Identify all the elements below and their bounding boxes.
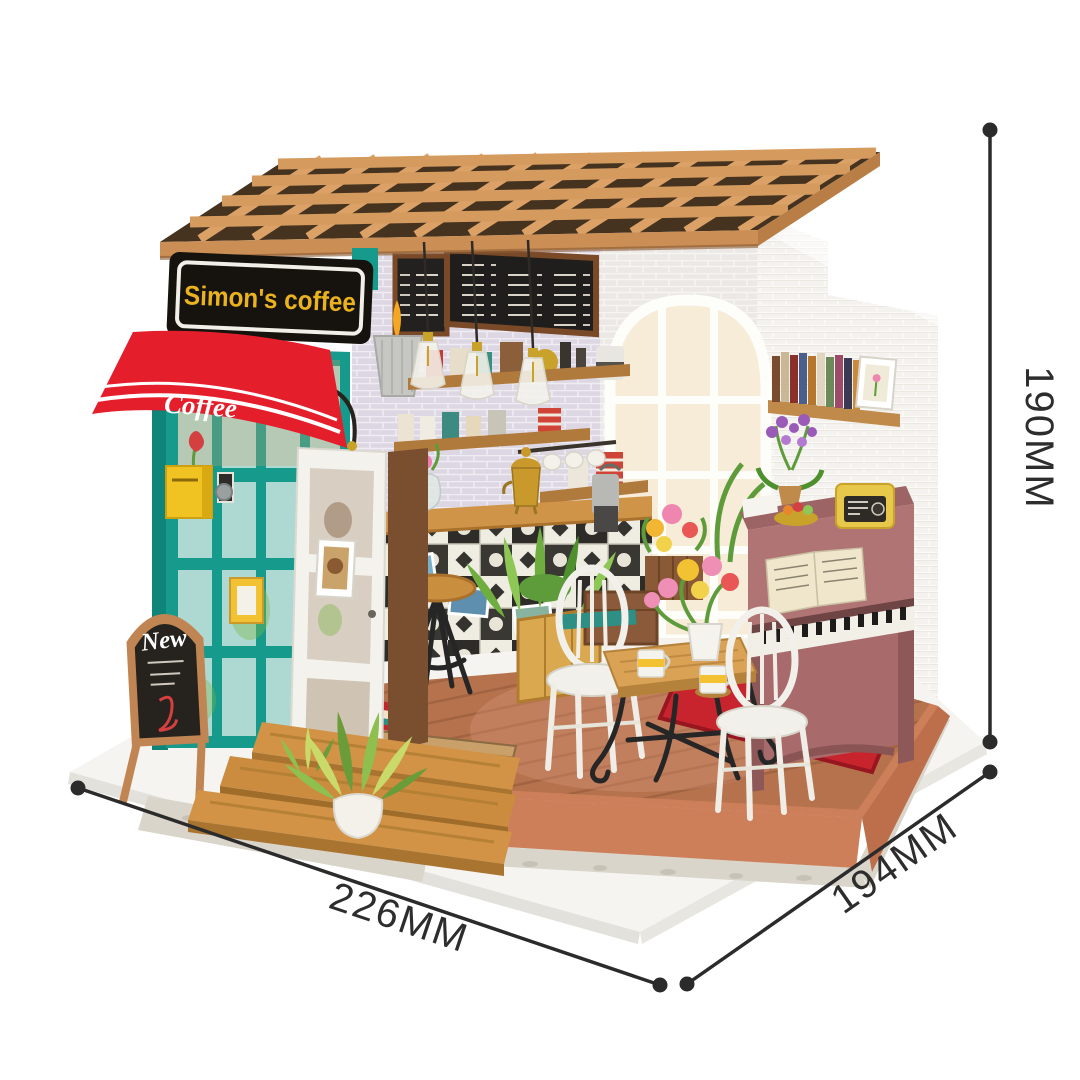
radio bbox=[836, 484, 894, 528]
dimension-dot bbox=[983, 735, 998, 750]
dimension-dot bbox=[71, 781, 86, 796]
dimension-height: 190MM bbox=[983, 123, 1062, 750]
shop-sign: Simon's coffee bbox=[166, 252, 373, 345]
dimension-dot bbox=[653, 978, 668, 993]
flower-pot bbox=[688, 624, 722, 660]
upright-piano bbox=[740, 484, 914, 792]
dimension-dot bbox=[983, 765, 998, 780]
dimension-dot bbox=[680, 977, 695, 992]
dimension-dot bbox=[983, 123, 998, 138]
coffee-grinder bbox=[592, 465, 620, 532]
awning-text: Coffee bbox=[163, 389, 238, 424]
dollhouse-illustration: Simon's coffee Coffee New 226MM 194MM bbox=[0, 0, 1080, 1080]
sandwich-board-text: New bbox=[139, 624, 189, 657]
shelf-picture-frame bbox=[856, 357, 896, 410]
books bbox=[772, 352, 860, 410]
door-handle bbox=[368, 610, 376, 618]
product-image: Simon's coffee Coffee New 226MM 194MM bbox=[0, 0, 1080, 1080]
height-label: 190MM bbox=[1017, 366, 1061, 509]
